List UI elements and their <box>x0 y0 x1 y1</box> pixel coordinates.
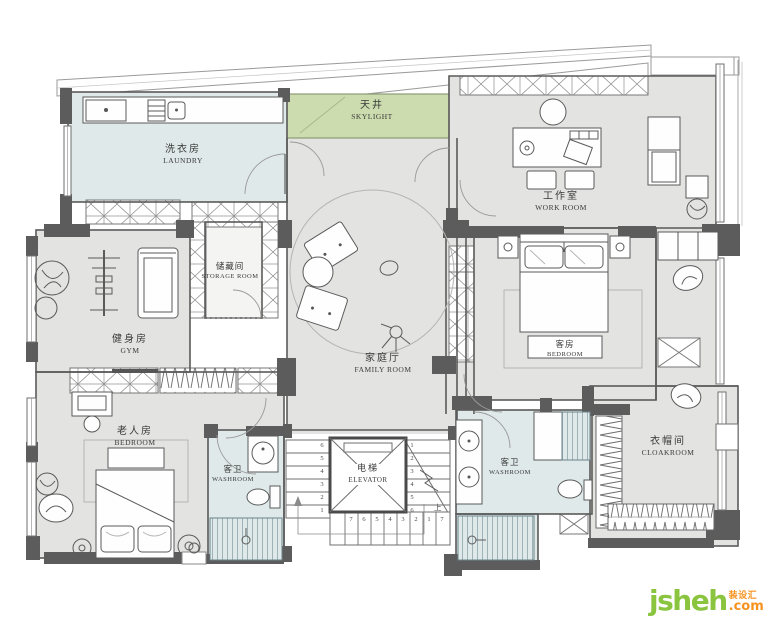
stair-number: 1 <box>320 507 323 514</box>
stair-number: 1 <box>427 516 430 523</box>
headboard <box>520 234 608 242</box>
stair-number: 5 <box>410 494 413 501</box>
nightstand <box>498 236 518 258</box>
stair-number: 6 <box>362 516 365 523</box>
stair-number: 2 <box>414 516 417 523</box>
room-label-storage: 储藏间 STORAGE ROOM <box>202 262 259 281</box>
bed-bench <box>108 448 164 468</box>
room-label-work-room: 工作室 WORK ROOM <box>535 190 587 213</box>
round-table <box>303 257 333 287</box>
site-logo: jsheh 装设汇 .com <box>649 589 764 613</box>
stair-number: 5 <box>320 455 323 462</box>
stair-up-label: 上 <box>434 502 442 513</box>
room-label-skylight: 天井 SKYLIGHT <box>351 99 393 122</box>
stair-number: 4 <box>320 468 323 475</box>
toilet <box>247 489 269 505</box>
stair-number: 1 <box>410 442 413 449</box>
stair-number: 3 <box>410 468 413 475</box>
room-label-guest-bedroom: 客房 BEDROOM <box>547 340 583 359</box>
tv <box>112 369 158 373</box>
room-label-elevator: 电梯 ELEVATOR <box>346 464 389 485</box>
logo-wordmark: jsheh <box>649 589 727 613</box>
stair-number: 5 <box>375 516 378 523</box>
room-label-family-room: 家庭厅 FAMILY ROOM <box>354 352 411 375</box>
laundry-fixtures <box>83 97 283 123</box>
shower-door <box>534 412 562 460</box>
stair-number: 7 <box>440 516 443 523</box>
floor-plan-page: 洗衣房 LAUNDRY 天井 SKYLIGHT 工作室 WORK ROOM 储藏… <box>0 0 780 624</box>
stairs-and-elevator <box>286 438 450 545</box>
stool <box>527 171 556 189</box>
stair-number: 6 <box>320 442 323 449</box>
room-label-cloakroom: 衣帽间 CLOAKROOM <box>642 435 695 458</box>
toilet <box>558 480 582 498</box>
stair-number: 6 <box>410 507 413 514</box>
work-room-cabinet <box>460 76 648 95</box>
laundry-cabinet <box>86 200 180 224</box>
armchair <box>39 494 73 522</box>
room-label-elder-bedroom: 老人房 BEDROOM <box>114 425 155 448</box>
stool <box>565 171 594 189</box>
desk-chair <box>540 99 566 125</box>
room-label-washroom-2: 客卫 WASHROOM <box>489 458 531 477</box>
nightstand <box>610 236 630 258</box>
shower <box>210 518 282 560</box>
room-label-washroom-1: 客卫 WASHROOM <box>212 465 254 484</box>
closet <box>658 232 718 260</box>
stair-number: 7 <box>349 516 352 523</box>
room-label-gym: 健身房 GYM <box>112 333 148 356</box>
room-label-laundry: 洗衣房 LAUNDRY <box>163 143 203 166</box>
vanity <box>456 420 482 504</box>
toilet-tank <box>584 480 592 500</box>
bed <box>96 470 174 558</box>
stair-number: 3 <box>401 516 404 523</box>
steam-shower <box>458 516 534 560</box>
shower <box>562 412 590 460</box>
chaise <box>648 117 680 185</box>
elevator-door <box>344 443 392 452</box>
bed <box>520 242 608 332</box>
logo-tld: .com <box>729 601 764 613</box>
storage-right-shelves <box>262 222 278 318</box>
floor-plan-drawing <box>0 0 780 624</box>
stair-number: 2 <box>320 494 323 501</box>
corridor-cabinet <box>449 246 474 362</box>
stair-number: 4 <box>410 481 413 488</box>
desk-chair <box>84 416 100 432</box>
stair-number: 4 <box>388 516 391 523</box>
toilet-tank <box>270 486 280 508</box>
side-table <box>686 176 708 198</box>
stair-number: 3 <box>320 481 323 488</box>
stair-number: 2 <box>410 455 413 462</box>
